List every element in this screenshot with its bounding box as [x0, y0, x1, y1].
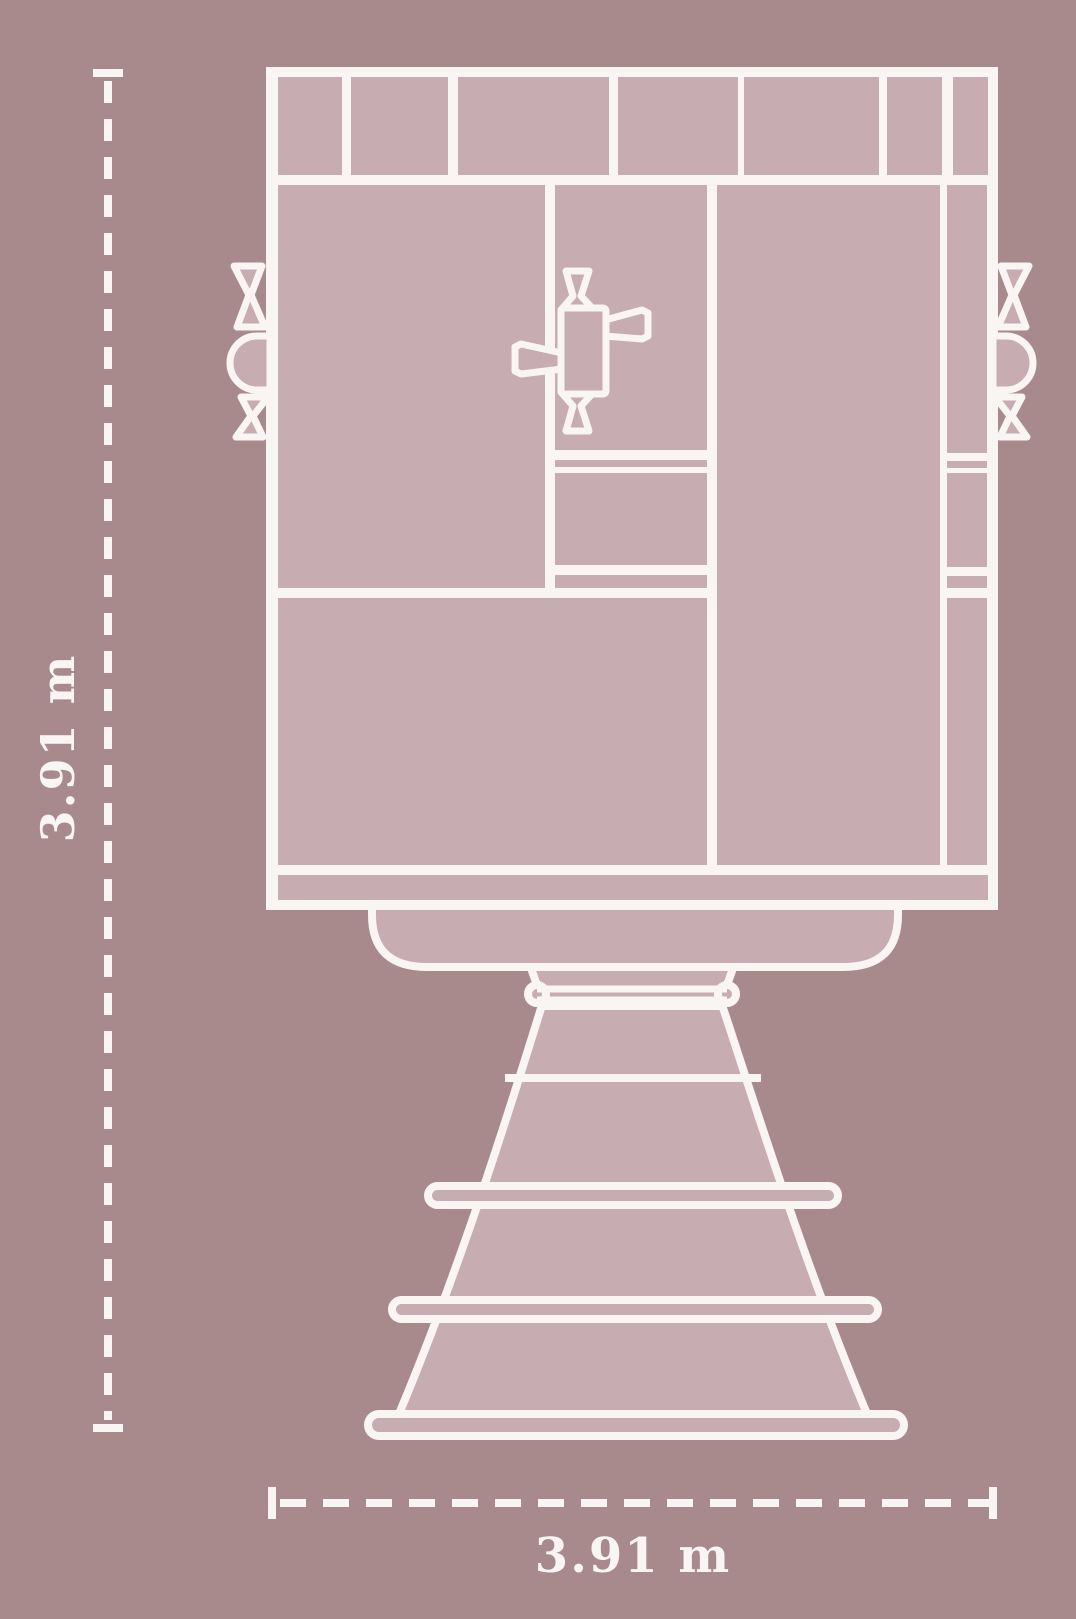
panel-narrow-a [947, 185, 987, 453]
side-turbine-left-icon [230, 266, 270, 437]
diagram-canvas: 3.91 m 3.91 m [0, 0, 1076, 1619]
panel-right-wide [717, 185, 940, 865]
width-dimension-label: 3.91 m [483, 1525, 783, 1587]
panel-mid-strip [555, 575, 707, 588]
turbopump-housing [561, 308, 606, 394]
stiffener-ring-1 [428, 1186, 838, 1205]
panel-narrow-b [947, 473, 987, 567]
stiffener-ring-2 [392, 1300, 878, 1319]
side-turbine-right-icon [993, 266, 1033, 437]
panel-cell [887, 77, 942, 175]
panel-narrow-strip [947, 576, 987, 588]
nozzle-cone [393, 1002, 873, 1428]
panel-cell [744, 77, 879, 175]
panel-cell [351, 77, 448, 175]
body-panels [278, 185, 988, 900]
panel-mid-sliver [555, 460, 707, 467]
panel-cell [278, 77, 342, 175]
panel-cell [458, 77, 609, 175]
nozzle-bell [368, 1002, 904, 1436]
panel-cell [953, 77, 988, 175]
panel-base-strip [278, 875, 988, 900]
panel-lower-left [278, 598, 707, 865]
panel-mid-sub [555, 473, 707, 565]
height-dimension-label: 3.91 m [28, 628, 88, 868]
panel-narrow-sliver [947, 461, 987, 468]
panel-narrow-c [947, 598, 987, 865]
engine-body [266, 67, 998, 910]
dimension-line-vertical [93, 73, 123, 1428]
dimension-line-horizontal [272, 1487, 993, 1519]
engine-diagram [0, 0, 1076, 1619]
turbopump-blade-left [515, 344, 562, 374]
nozzle-exit-lip [368, 1414, 904, 1436]
panel-upper-left [278, 185, 545, 588]
panel-cell [618, 77, 738, 175]
